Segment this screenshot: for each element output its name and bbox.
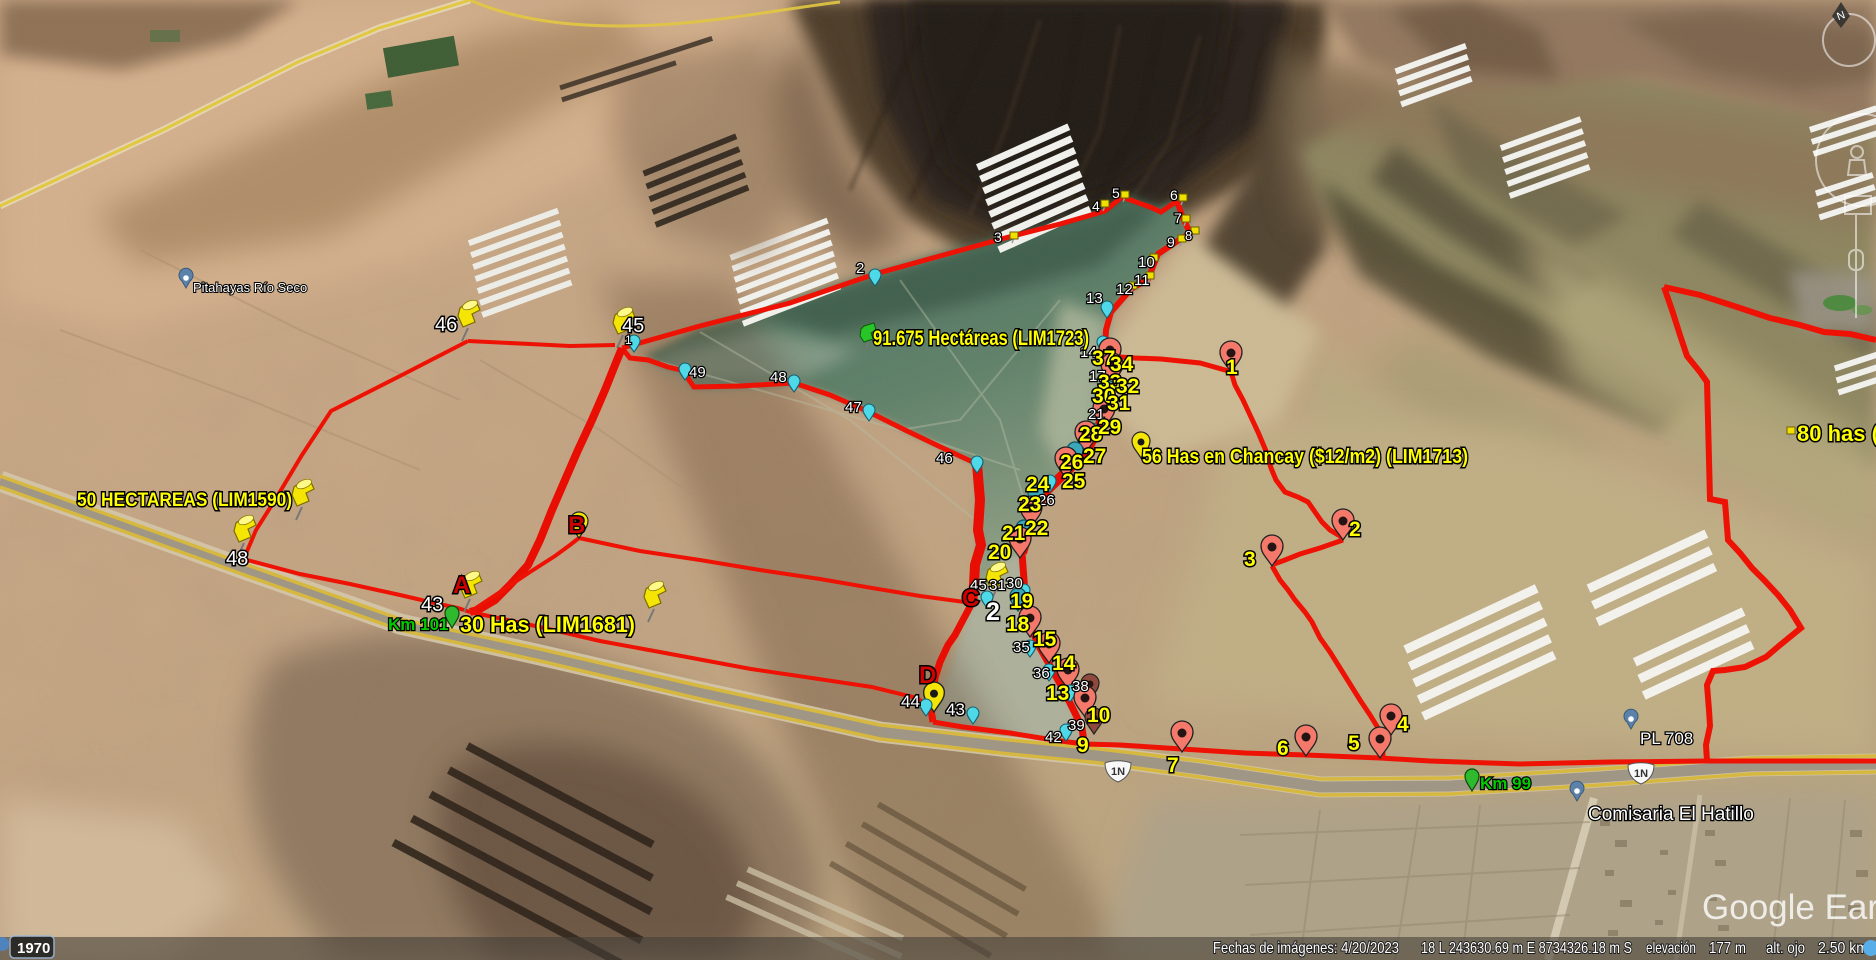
svg-text:D: D <box>919 662 936 689</box>
svg-text:36: 36 <box>1033 665 1050 682</box>
svg-text:1970: 1970 <box>17 940 50 957</box>
svg-text:1: 1 <box>625 333 632 347</box>
svg-text:8: 8 <box>1185 228 1192 243</box>
svg-text:31: 31 <box>989 577 1006 594</box>
svg-text:C: C <box>962 585 979 612</box>
svg-text:Pitahayas Río Seco: Pitahayas Río Seco <box>193 280 307 295</box>
svg-text:22: 22 <box>1025 517 1048 540</box>
svg-text:43: 43 <box>946 700 965 719</box>
svg-text:177 m: 177 m <box>1709 940 1746 957</box>
svg-text:27: 27 <box>1083 445 1106 468</box>
svg-text:19: 19 <box>1010 590 1033 613</box>
svg-text:91.675 Hectáreas (LIM1723): 91.675 Hectáreas (LIM1723) <box>873 327 1089 350</box>
svg-text:20: 20 <box>988 541 1011 564</box>
svg-text:Comisaria El Hatillo: Comisaria El Hatillo <box>1588 804 1754 825</box>
svg-text:39: 39 <box>1068 717 1085 734</box>
svg-text:2: 2 <box>1349 518 1361 541</box>
svg-text:2: 2 <box>986 598 1000 626</box>
svg-text:10: 10 <box>1087 704 1110 727</box>
svg-text:elevación: elevación <box>1646 940 1696 957</box>
svg-text:18: 18 <box>1006 613 1030 636</box>
svg-text:48: 48 <box>226 548 248 570</box>
svg-text:5: 5 <box>1348 732 1360 755</box>
svg-text:25: 25 <box>1062 470 1086 493</box>
svg-text:11: 11 <box>1134 272 1150 289</box>
svg-text:6: 6 <box>1170 187 1178 203</box>
svg-text:49: 49 <box>689 364 706 381</box>
svg-text:Km 101: Km 101 <box>388 615 448 634</box>
svg-text:Km 99: Km 99 <box>1480 774 1531 793</box>
svg-text:3: 3 <box>1244 548 1256 571</box>
svg-text:14: 14 <box>1052 652 1076 675</box>
svg-text:A: A <box>453 572 470 599</box>
svg-text:12: 12 <box>1116 281 1133 298</box>
svg-text:47: 47 <box>845 399 862 416</box>
svg-text:50 HECTAREAS (LIM1590): 50 HECTAREAS (LIM1590) <box>77 490 292 511</box>
svg-text:3: 3 <box>994 229 1002 245</box>
svg-text:13: 13 <box>1086 290 1103 307</box>
svg-text:2: 2 <box>856 260 864 277</box>
svg-text:9: 9 <box>1077 734 1089 757</box>
svg-text:alt. ojo: alt. ojo <box>1766 940 1805 957</box>
svg-text:46: 46 <box>936 450 953 467</box>
svg-text:Fechas de imágenes: 4/20/2023: Fechas de imágenes: 4/20/2023 <box>1213 940 1399 957</box>
svg-text:23: 23 <box>1018 493 1041 516</box>
svg-text:38: 38 <box>1072 678 1089 695</box>
svg-text:10: 10 <box>1138 254 1155 271</box>
svg-text:30 Has (LIM1681): 30 Has (LIM1681) <box>460 612 635 637</box>
svg-text:PL 708: PL 708 <box>1640 729 1693 748</box>
svg-text:18 L 243630.69 m E 8734326.18: 18 L 243630.69 m E 8734326.18 m S <box>1421 940 1632 957</box>
svg-text:29: 29 <box>1098 416 1121 439</box>
svg-text:13: 13 <box>1046 682 1069 705</box>
svg-text:31: 31 <box>1107 392 1131 415</box>
svg-text:48: 48 <box>770 369 787 386</box>
svg-text:43: 43 <box>421 594 443 616</box>
svg-text:5: 5 <box>1112 185 1120 201</box>
svg-text:56 Has en Chancay ($12/m2) (LI: 56 Has en Chancay ($12/m2) (LIM1713) <box>1142 446 1468 468</box>
svg-text:6: 6 <box>1277 737 1289 760</box>
svg-text:46: 46 <box>435 314 457 336</box>
svg-text:B: B <box>568 512 585 539</box>
svg-text:42: 42 <box>1045 729 1062 746</box>
svg-text:2.50 km: 2.50 km <box>1818 940 1868 957</box>
svg-text:1: 1 <box>1226 356 1238 379</box>
svg-text:9: 9 <box>1167 234 1175 250</box>
svg-text:15: 15 <box>1033 628 1057 651</box>
svg-text:80 has (L: 80 has (L <box>1797 421 1876 446</box>
svg-text:Google Eart: Google Eart <box>1702 888 1876 927</box>
svg-text:44: 44 <box>901 692 920 711</box>
svg-text:7: 7 <box>1167 754 1179 777</box>
svg-text:35: 35 <box>1013 639 1030 656</box>
svg-text:4: 4 <box>1397 713 1409 736</box>
svg-text:4: 4 <box>1092 198 1100 214</box>
svg-text:7: 7 <box>1174 210 1182 226</box>
